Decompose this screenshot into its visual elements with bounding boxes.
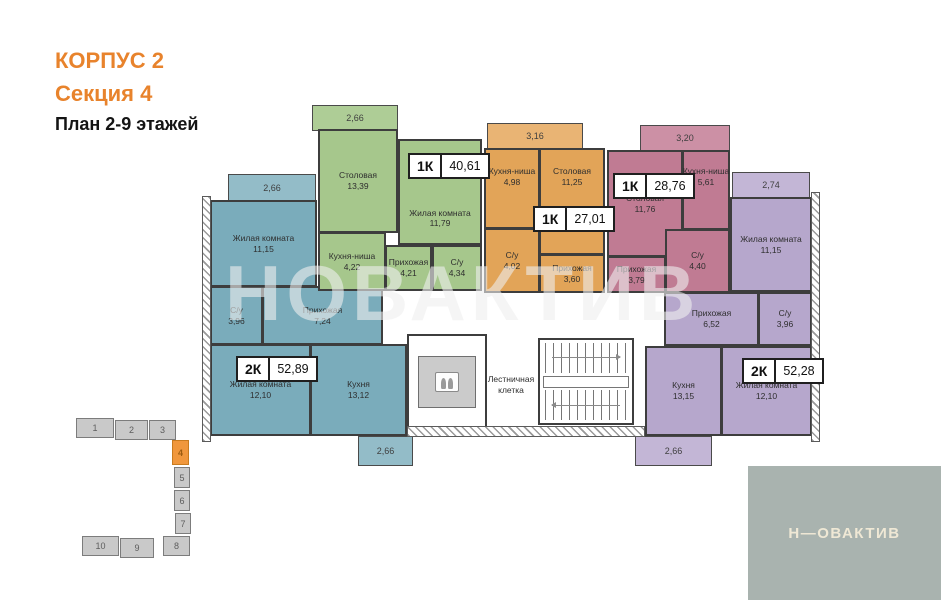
room-label: Кухня [347, 379, 370, 390]
purple-apartment-badge[interactable]: 2К 52,28 [742, 358, 824, 384]
room-area: 4,98 [504, 177, 521, 188]
room-area: 3,79 [628, 275, 645, 286]
room-area: 11,15 [253, 244, 274, 255]
dimension-label: 3,16 [526, 131, 544, 141]
purple-kitchen: Кухня 13,15 [645, 346, 722, 436]
purple-bathroom: С/у 3,96 [758, 292, 812, 346]
minimap-section-6[interactable]: 6 [174, 490, 190, 511]
room-area: 3,60 [564, 274, 581, 285]
room-label: С/у [451, 257, 464, 268]
dimension-label: 2,66 [263, 183, 281, 193]
apartment-total-area: 28,76 [647, 175, 692, 197]
room-label: С/у [506, 250, 519, 261]
room-area: 11,79 [430, 218, 451, 229]
minimap-section-number: 5 [179, 473, 184, 483]
room-label: Прихожая [389, 257, 428, 268]
room-area: 13,39 [347, 181, 368, 192]
room-label: Кухня [672, 380, 695, 391]
green-dining-room: Столовая 13,39 [318, 129, 398, 233]
room-label: Прихожая [692, 308, 731, 319]
orange-bathroom: С/у 4,02 [484, 228, 540, 293]
minimap-section-2[interactable]: 2 [115, 420, 148, 440]
room-area: 4,22 [344, 262, 361, 273]
room-label: Кухня-ниша [329, 251, 376, 262]
room-label: Прихожая [552, 263, 591, 274]
minimap-section-number: 6 [179, 496, 184, 506]
orange-apartment-badge[interactable]: 1К 27,01 [533, 206, 615, 232]
dimension-label: 2,66 [665, 446, 683, 456]
orange-kitchen-niche: Кухня-ниша 4,98 [484, 148, 540, 229]
page-title-section: Секция 4 [55, 81, 152, 107]
page-title-plan: План 2-9 этажей [55, 114, 198, 135]
stair-flight-upper [545, 343, 627, 373]
room-area: 3,96 [228, 316, 245, 327]
minimap-section-7[interactable]: 7 [175, 513, 191, 534]
green-kitchen-niche: Кухня-ниша 4,22 [318, 232, 386, 291]
teal-balcony-bottom: 2,66 [358, 436, 413, 466]
apartment-total-area: 27,01 [567, 208, 612, 230]
green-apartment-badge[interactable]: 1К 40,61 [408, 153, 490, 179]
exterior-wall-left [202, 196, 211, 442]
room-area: 11,15 [761, 245, 782, 256]
dimension-label: 3,20 [676, 133, 694, 143]
pink-bathroom: С/у 4,40 [665, 229, 730, 293]
room-area: 5,61 [698, 177, 715, 188]
floor-plan-page: КОРПУС 2 Секция 4 План 2-9 этажей 2,66 Ж… [0, 0, 941, 600]
room-label: Жилая комната [233, 233, 294, 244]
minimap-section-number: 7 [180, 519, 185, 529]
apartment-type: 1К [410, 155, 442, 177]
room-label: С/у [230, 305, 243, 316]
elevator-shaft [418, 356, 476, 408]
person-icon [448, 378, 453, 389]
room-area: 4,21 [400, 268, 417, 279]
minimap-section-number: 4 [178, 448, 183, 458]
page-title-building: КОРПУС 2 [55, 48, 164, 74]
room-area: 13,15 [673, 391, 694, 402]
minimap-section-number: 2 [129, 425, 134, 435]
room-label: С/у [779, 308, 792, 319]
exterior-wall-bottom [407, 426, 645, 437]
teal-living-room-top: Жилая комната 11,15 [210, 200, 317, 287]
stairwell [538, 338, 634, 425]
minimap-section-9[interactable]: 9 [120, 538, 154, 558]
room-area: 3,96 [777, 319, 794, 330]
room-area: 4,02 [504, 261, 521, 272]
room-label: Прихожая [303, 305, 342, 316]
purple-hallway: Прихожая 6,52 [664, 292, 759, 346]
pink-hallway: Прихожая 3,79 [607, 256, 666, 293]
apartment-total-area: 52,89 [270, 358, 315, 380]
apartment-total-area: 52,28 [776, 360, 821, 382]
teal-kitchen: Кухня 13,12 [310, 344, 407, 436]
minimap-section-3[interactable]: 3 [149, 420, 176, 440]
green-balcony-top: 2,66 [312, 105, 398, 131]
minimap-section-number: 1 [92, 423, 97, 433]
room-area: 12,10 [250, 390, 271, 401]
stairwell-label-line1: Лестничная [482, 374, 540, 385]
room-area: 6,52 [703, 319, 720, 330]
room-label: Жилая комната [409, 208, 470, 219]
elevator-room [407, 334, 487, 430]
room-area: 11,76 [635, 204, 656, 215]
green-bathroom: С/у 4,34 [432, 245, 482, 291]
pink-balcony-top: 3,20 [640, 125, 730, 151]
dimension-label: 2,74 [762, 180, 780, 190]
room-label: Столовая [339, 170, 377, 181]
stairwell-label: Лестничная клетка [482, 374, 540, 396]
developer-logo-plate: Н—ОВАКТИВ [748, 466, 941, 600]
minimap-section-1[interactable]: 1 [76, 418, 114, 438]
apartment-type: 1К [535, 208, 567, 230]
pink-apartment-badge[interactable]: 1К 28,76 [613, 173, 695, 199]
purple-balcony-top: 2,74 [732, 172, 810, 198]
dimension-label: 2,66 [346, 113, 364, 123]
apartment-type: 2К [238, 358, 270, 380]
teal-balcony-top: 2,66 [228, 174, 316, 201]
room-area: 7,24 [314, 316, 331, 327]
developer-logo: Н—ОВАКТИВ [788, 525, 900, 542]
person-icon [441, 378, 446, 389]
minimap-section-number: 9 [134, 543, 139, 553]
teal-apartment-badge[interactable]: 2К 52,89 [236, 356, 318, 382]
room-area: 4,34 [449, 268, 466, 279]
elevator-icon [435, 372, 459, 392]
room-area: 12,10 [756, 391, 777, 402]
room-label: Столовая [553, 166, 591, 177]
room-label: С/у [691, 250, 704, 261]
apartment-type: 1К [615, 175, 647, 197]
orange-hallway: Прихожая 3,60 [539, 254, 605, 293]
stair-direction-arrow [552, 357, 620, 358]
green-hallway: Прихожая 4,21 [385, 245, 432, 291]
purple-balcony-bottom: 2,66 [635, 436, 712, 466]
stair-landing [543, 376, 629, 388]
teal-hallway: Прихожая 7,24 [262, 286, 383, 345]
room-label: Жилая комната [740, 234, 801, 245]
orange-dining-room: Столовая 11,25 [539, 148, 605, 255]
minimap-section-number: 10 [95, 541, 105, 551]
minimap-section-5[interactable]: 5 [174, 467, 190, 488]
minimap-section-4-active[interactable]: 4 [172, 440, 189, 465]
apartment-type: 2К [744, 360, 776, 382]
room-area: 11,25 [562, 177, 583, 188]
exterior-wall-right [811, 192, 820, 442]
teal-bathroom: С/у 3,96 [210, 286, 263, 345]
minimap-section-number: 8 [174, 541, 179, 551]
room-area: 4,40 [689, 261, 706, 272]
room-label: Кухня-ниша [489, 166, 536, 177]
minimap-section-10[interactable]: 10 [82, 536, 119, 556]
room-label: Прихожая [617, 264, 656, 275]
apartment-total-area: 40,61 [442, 155, 487, 177]
orange-balcony-top: 3,16 [487, 123, 583, 149]
room-area: 13,12 [348, 390, 369, 401]
dimension-label: 2,66 [377, 446, 395, 456]
purple-living-room-top: Жилая комната 11,15 [730, 197, 812, 292]
stairwell-label-line2: клетка [482, 385, 540, 396]
minimap-section-8[interactable]: 8 [163, 536, 190, 556]
minimap-section-number: 3 [160, 425, 165, 435]
stair-direction-arrow [552, 405, 620, 406]
